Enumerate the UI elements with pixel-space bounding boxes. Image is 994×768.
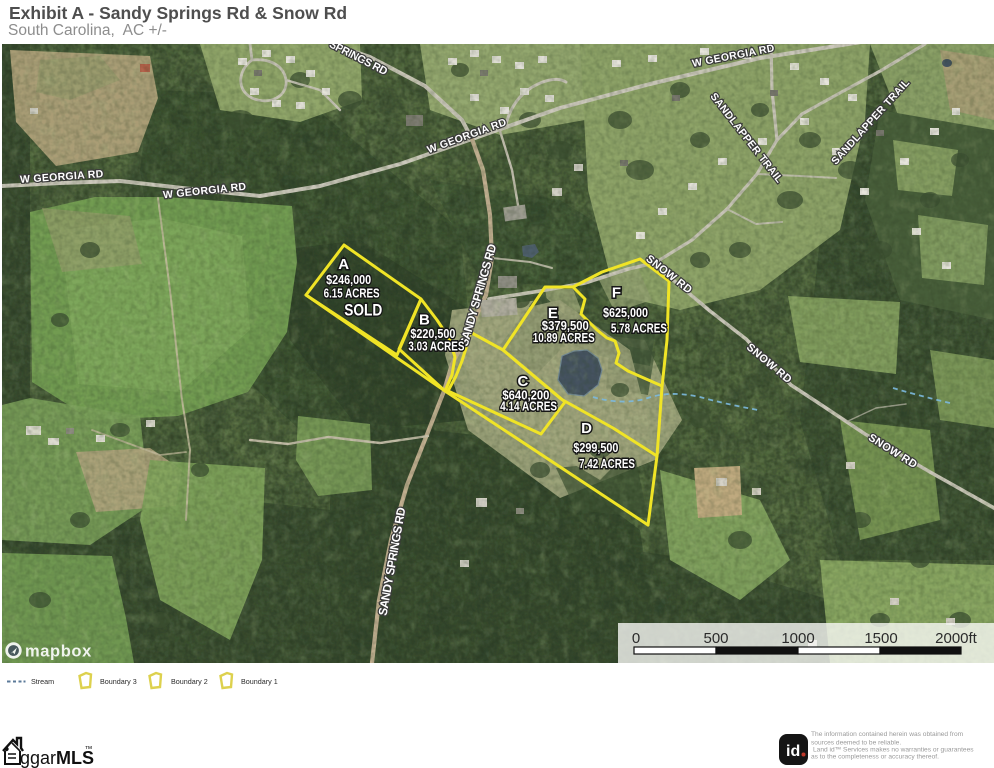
svg-text:0: 0 <box>632 630 640 647</box>
svg-text:A: A <box>338 256 349 273</box>
svg-text:D: D <box>581 420 592 437</box>
svg-text:Boundary 2: Boundary 2 <box>171 677 208 686</box>
svg-text:™: ™ <box>85 745 93 754</box>
svg-text:2000ft: 2000ft <box>935 630 978 647</box>
svg-text:Stream: Stream <box>31 677 54 686</box>
svg-text:id: id <box>786 743 800 760</box>
svg-text:ggarMLS: ggarMLS <box>20 748 94 768</box>
svg-text:1500: 1500 <box>864 630 897 647</box>
svg-text:7.42 ACRES: 7.42 ACRES <box>579 456 635 471</box>
svg-text:The information contained here: The information contained herein was obt… <box>811 731 964 738</box>
svg-text:$625,000: $625,000 <box>603 305 648 320</box>
svg-text:Boundary 3: Boundary 3 <box>100 677 137 686</box>
svg-text:as to the completeness or accu: as to the completeness or accuracy there… <box>811 754 939 761</box>
svg-text:SOLD: SOLD <box>344 301 382 320</box>
svg-text:5.78 ACRES: 5.78 ACRES <box>611 321 667 336</box>
svg-text:F: F <box>612 285 621 302</box>
svg-text:500: 500 <box>703 630 728 647</box>
svg-text:4.14 ACRES: 4.14 ACRES <box>500 399 557 414</box>
svg-text:6.15 ACRES: 6.15 ACRES <box>324 286 380 301</box>
svg-text:$299,500: $299,500 <box>573 440 618 455</box>
svg-text:1000: 1000 <box>781 630 814 647</box>
svg-text:10.89 ACRES: 10.89 ACRES <box>533 330 595 345</box>
svg-text:Boundary 1: Boundary 1 <box>241 677 278 686</box>
svg-text:3.03 ACRES: 3.03 ACRES <box>408 339 464 354</box>
svg-text:sources deemed to be reliable.: sources deemed to be reliable. <box>811 740 901 747</box>
svg-text:Land id™ Services makes no war: Land id™ Services makes no warranties or… <box>813 747 974 754</box>
svg-text:mapbox: mapbox <box>25 643 92 661</box>
